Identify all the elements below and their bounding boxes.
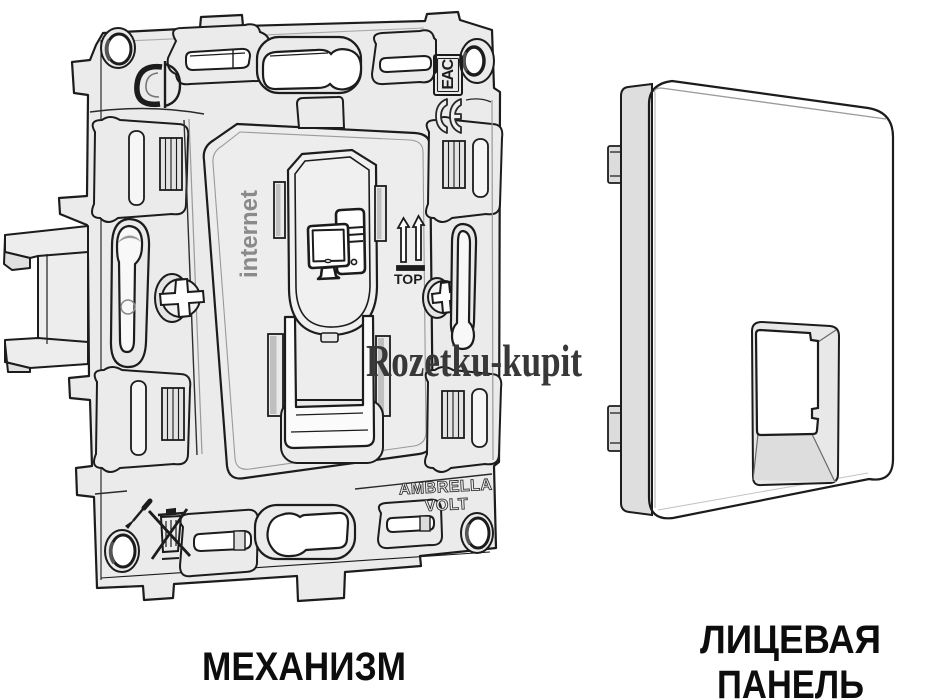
svg-text:ЛИЦЕВАЯ: ЛИЦЕВАЯ (700, 618, 881, 662)
svg-text:TOP: TOP (394, 271, 423, 287)
svg-text:VOLT: VOLT (424, 496, 468, 515)
svg-text:Rozetku-kupit: Rozetku-kupit (366, 335, 583, 386)
svg-text:internet: internet (236, 190, 263, 278)
svg-text:ПАНЕЛЬ: ПАНЕЛЬ (717, 663, 864, 700)
svg-text:EAC: EAC (440, 58, 457, 89)
svg-text:МЕХАНИЗМ: МЕХАНИЗМ (202, 645, 406, 689)
